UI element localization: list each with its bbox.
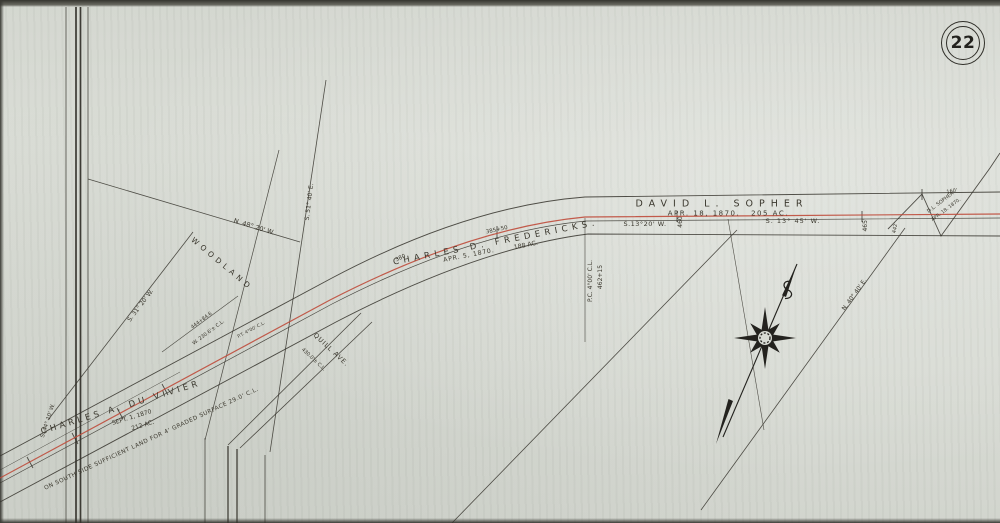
bearing-s13-20: S.13°20' W. bbox=[623, 221, 666, 228]
page-number: 22 bbox=[946, 26, 980, 60]
property-line-s51 bbox=[270, 80, 326, 452]
property-line-n40 bbox=[701, 228, 905, 510]
avenue-line-1 bbox=[240, 322, 372, 448]
survey-map-sheet: 22 DAVID L. SOPHER APR. 18, 1870. 205 AC… bbox=[0, 0, 1000, 523]
bearing-s13-45: S. 13° 45' W. bbox=[766, 218, 821, 225]
map-linework bbox=[0, 0, 1000, 523]
pc-station-label: 462+15 bbox=[598, 265, 604, 289]
parcel-division-line bbox=[452, 230, 737, 523]
parcel-owner-sopher: DAVID L. SOPHER bbox=[636, 199, 809, 209]
station-460: 460 bbox=[678, 216, 684, 227]
sopher-zigzag-boundary bbox=[888, 153, 1000, 236]
compass-needle-head bbox=[782, 264, 797, 297]
parcel-line-vertical bbox=[728, 219, 764, 430]
compass-needle-tail bbox=[716, 399, 733, 444]
page-number-badge: 22 bbox=[941, 21, 985, 65]
row-south-boundary-line bbox=[0, 234, 1000, 502]
station-465: 465' bbox=[863, 218, 869, 231]
compass-rose-icon bbox=[716, 264, 797, 444]
pc-curve-label: P.C. 4°00' C.L. bbox=[588, 260, 594, 302]
